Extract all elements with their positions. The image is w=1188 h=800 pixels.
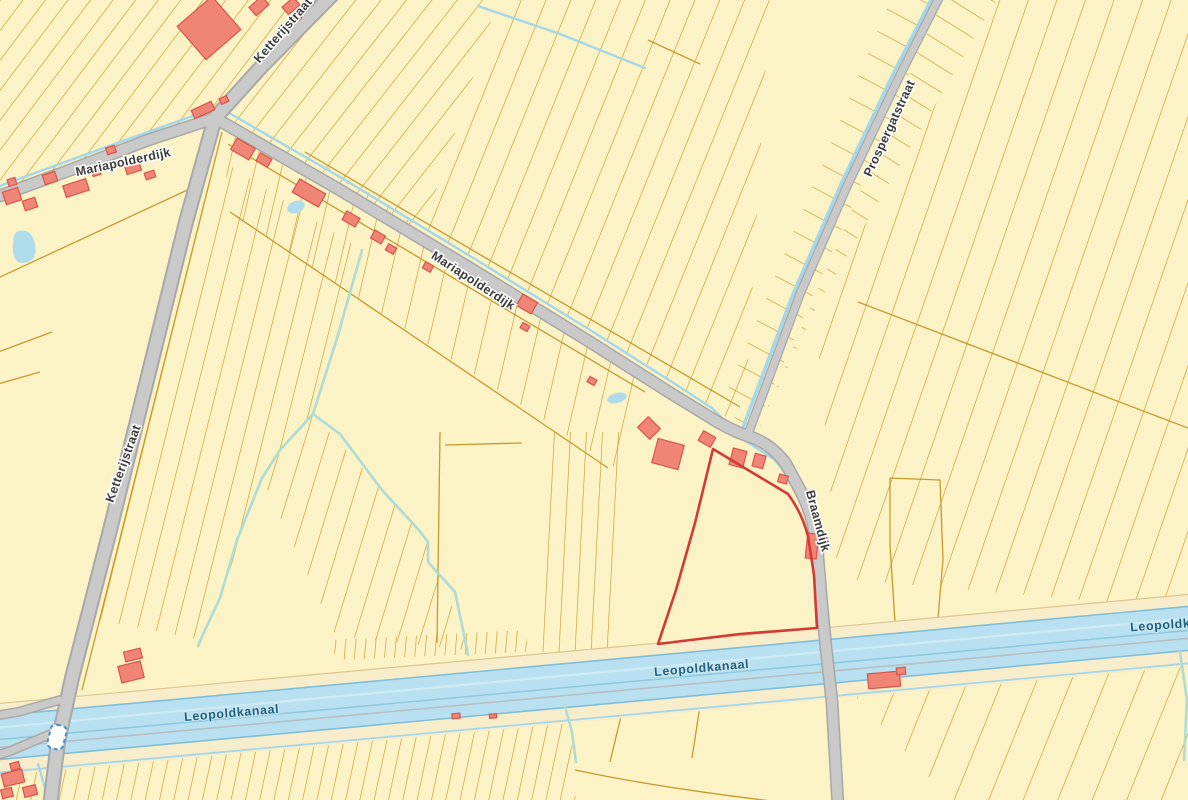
map-viewport[interactable]: Mariapolderdijk Ketterijstraat Mariapold… — [0, 0, 1188, 800]
cadastral-map[interactable]: Mariapolderdijk Ketterijstraat Mariapold… — [0, 0, 1188, 800]
